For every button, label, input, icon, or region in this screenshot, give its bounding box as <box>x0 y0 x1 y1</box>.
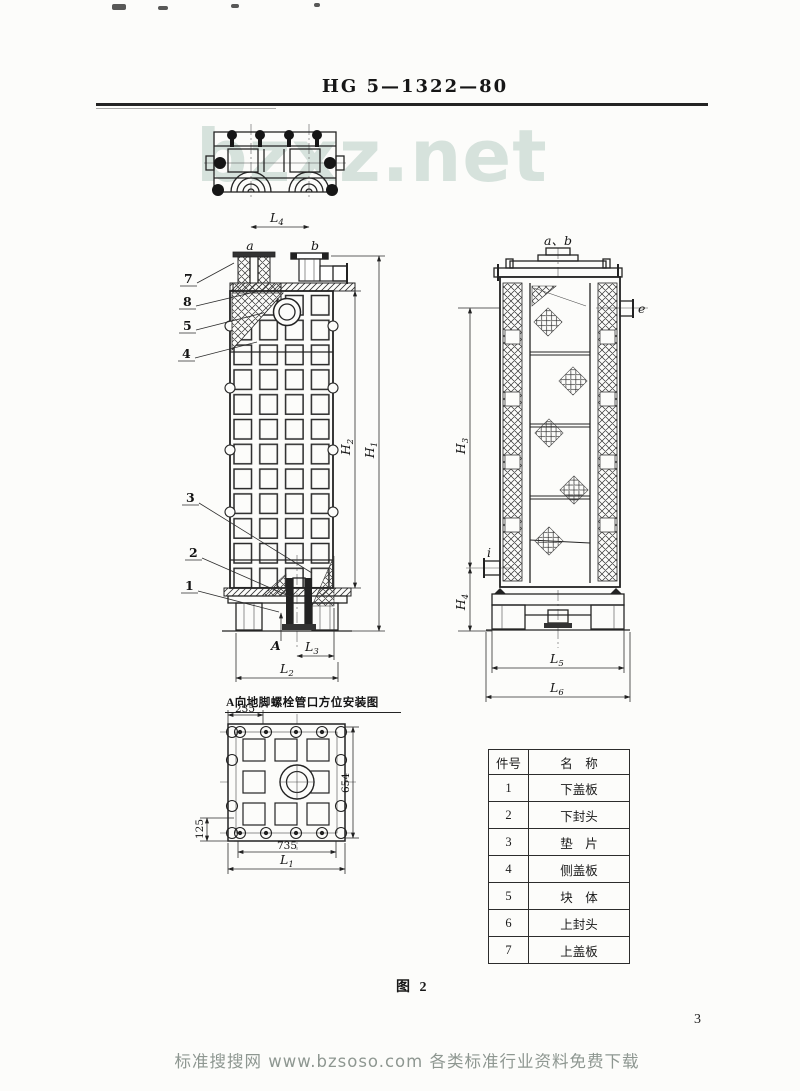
dim-654: 654 <box>340 773 352 793</box>
header-rule-shadow <box>96 108 276 109</box>
table-row: 3垫 片 <box>489 829 630 856</box>
table-row: 4侧盖板 <box>489 856 630 883</box>
dim-L2: L2 <box>279 661 294 679</box>
table-header-row: 件号 名 称 <box>489 750 630 775</box>
side-top-nozzle-label: a、b <box>544 233 572 248</box>
scanned-standard-page: HG 5—1322—80 bzxz.net <box>0 0 800 1091</box>
figure-2-drawing: L4 a b <box>0 110 800 890</box>
callout-8: 8 <box>183 294 192 309</box>
part-name: 垫 片 <box>529 829 630 856</box>
table-row: 2下封头 <box>489 802 630 829</box>
dim-L6: L6 <box>549 680 564 698</box>
dim-L1: L1 <box>279 852 294 870</box>
top-view-drawing <box>204 124 346 200</box>
part-name: 下封头 <box>529 802 630 829</box>
part-no: 3 <box>489 829 529 856</box>
table-row: 7上盖板 <box>489 937 630 964</box>
part-no: 6 <box>489 910 529 937</box>
callout-4: 4 <box>182 346 191 361</box>
watermark-bzsoso: 标准搜搜网 www.bzsoso.com 各类标准行业资料免费下载 <box>0 1048 800 1072</box>
part-name: 上封头 <box>529 910 630 937</box>
dim-H1: H1 <box>362 442 380 459</box>
part-no: 5 <box>489 883 529 910</box>
callout-7: 7 <box>184 271 193 286</box>
view-arrow-A: A <box>270 638 281 653</box>
part-no: 4 <box>489 856 529 883</box>
nozzle-b-label: b <box>311 238 319 253</box>
table-row: 6上封头 <box>489 910 630 937</box>
scan-artifact <box>158 6 168 10</box>
hand-hole <box>274 299 301 326</box>
a-view-caption: A向地脚螺栓管口方位安装图 <box>225 694 401 713</box>
bottom-view-drawing: 235 <box>194 703 359 874</box>
part-name: 块 体 <box>529 883 630 910</box>
dim-H2: H2 <box>338 439 356 456</box>
dim-H4: H4 <box>453 594 471 611</box>
dim-L5: L5 <box>549 651 564 669</box>
figure-caption: 图 2 <box>396 976 430 996</box>
scan-artifact <box>112 4 126 10</box>
side-view-drawing: a、b <box>453 233 648 702</box>
table-row: 5块 体 <box>489 883 630 910</box>
nozzle-e-label: e <box>638 301 645 316</box>
scan-artifact <box>231 4 239 8</box>
part-no: 2 <box>489 802 529 829</box>
callout-2: 2 <box>189 545 198 560</box>
dim-125: 125 <box>194 819 206 839</box>
col-header-part-no: 件号 <box>489 750 529 775</box>
dim-L3: L3 <box>304 639 319 657</box>
dim-L4: L4 <box>269 210 284 228</box>
part-name: 上盖板 <box>529 937 630 964</box>
dim-H3: H3 <box>453 438 471 455</box>
callout-3: 3 <box>186 490 195 505</box>
nozzle-a-label: a <box>246 238 253 253</box>
table-row: 1下盖板 <box>489 775 630 802</box>
dim-735: 735 <box>277 840 297 852</box>
part-name: 下盖板 <box>529 775 630 802</box>
header-rule <box>96 103 708 106</box>
col-header-part-name: 名 称 <box>529 750 630 775</box>
page-number: 3 <box>694 1012 701 1028</box>
part-no: 7 <box>489 937 529 964</box>
scan-artifact <box>314 3 320 7</box>
nozzle-i-label: i <box>487 545 491 560</box>
part-no: 1 <box>489 775 529 802</box>
height-dimensions: H2 H1 <box>331 256 385 631</box>
parts-table: 件号 名 称 1下盖板 2下封头 3垫 片 4侧盖板 5块 体 6上封头 7上盖… <box>488 749 630 964</box>
nozzle-b <box>291 253 347 281</box>
front-view-drawing: L4 a b <box>178 210 385 682</box>
part-name: 侧盖板 <box>529 856 630 883</box>
callout-5: 5 <box>183 318 192 333</box>
standard-number-header: HG 5—1322—80 <box>290 76 540 97</box>
callout-1: 1 <box>185 578 194 593</box>
